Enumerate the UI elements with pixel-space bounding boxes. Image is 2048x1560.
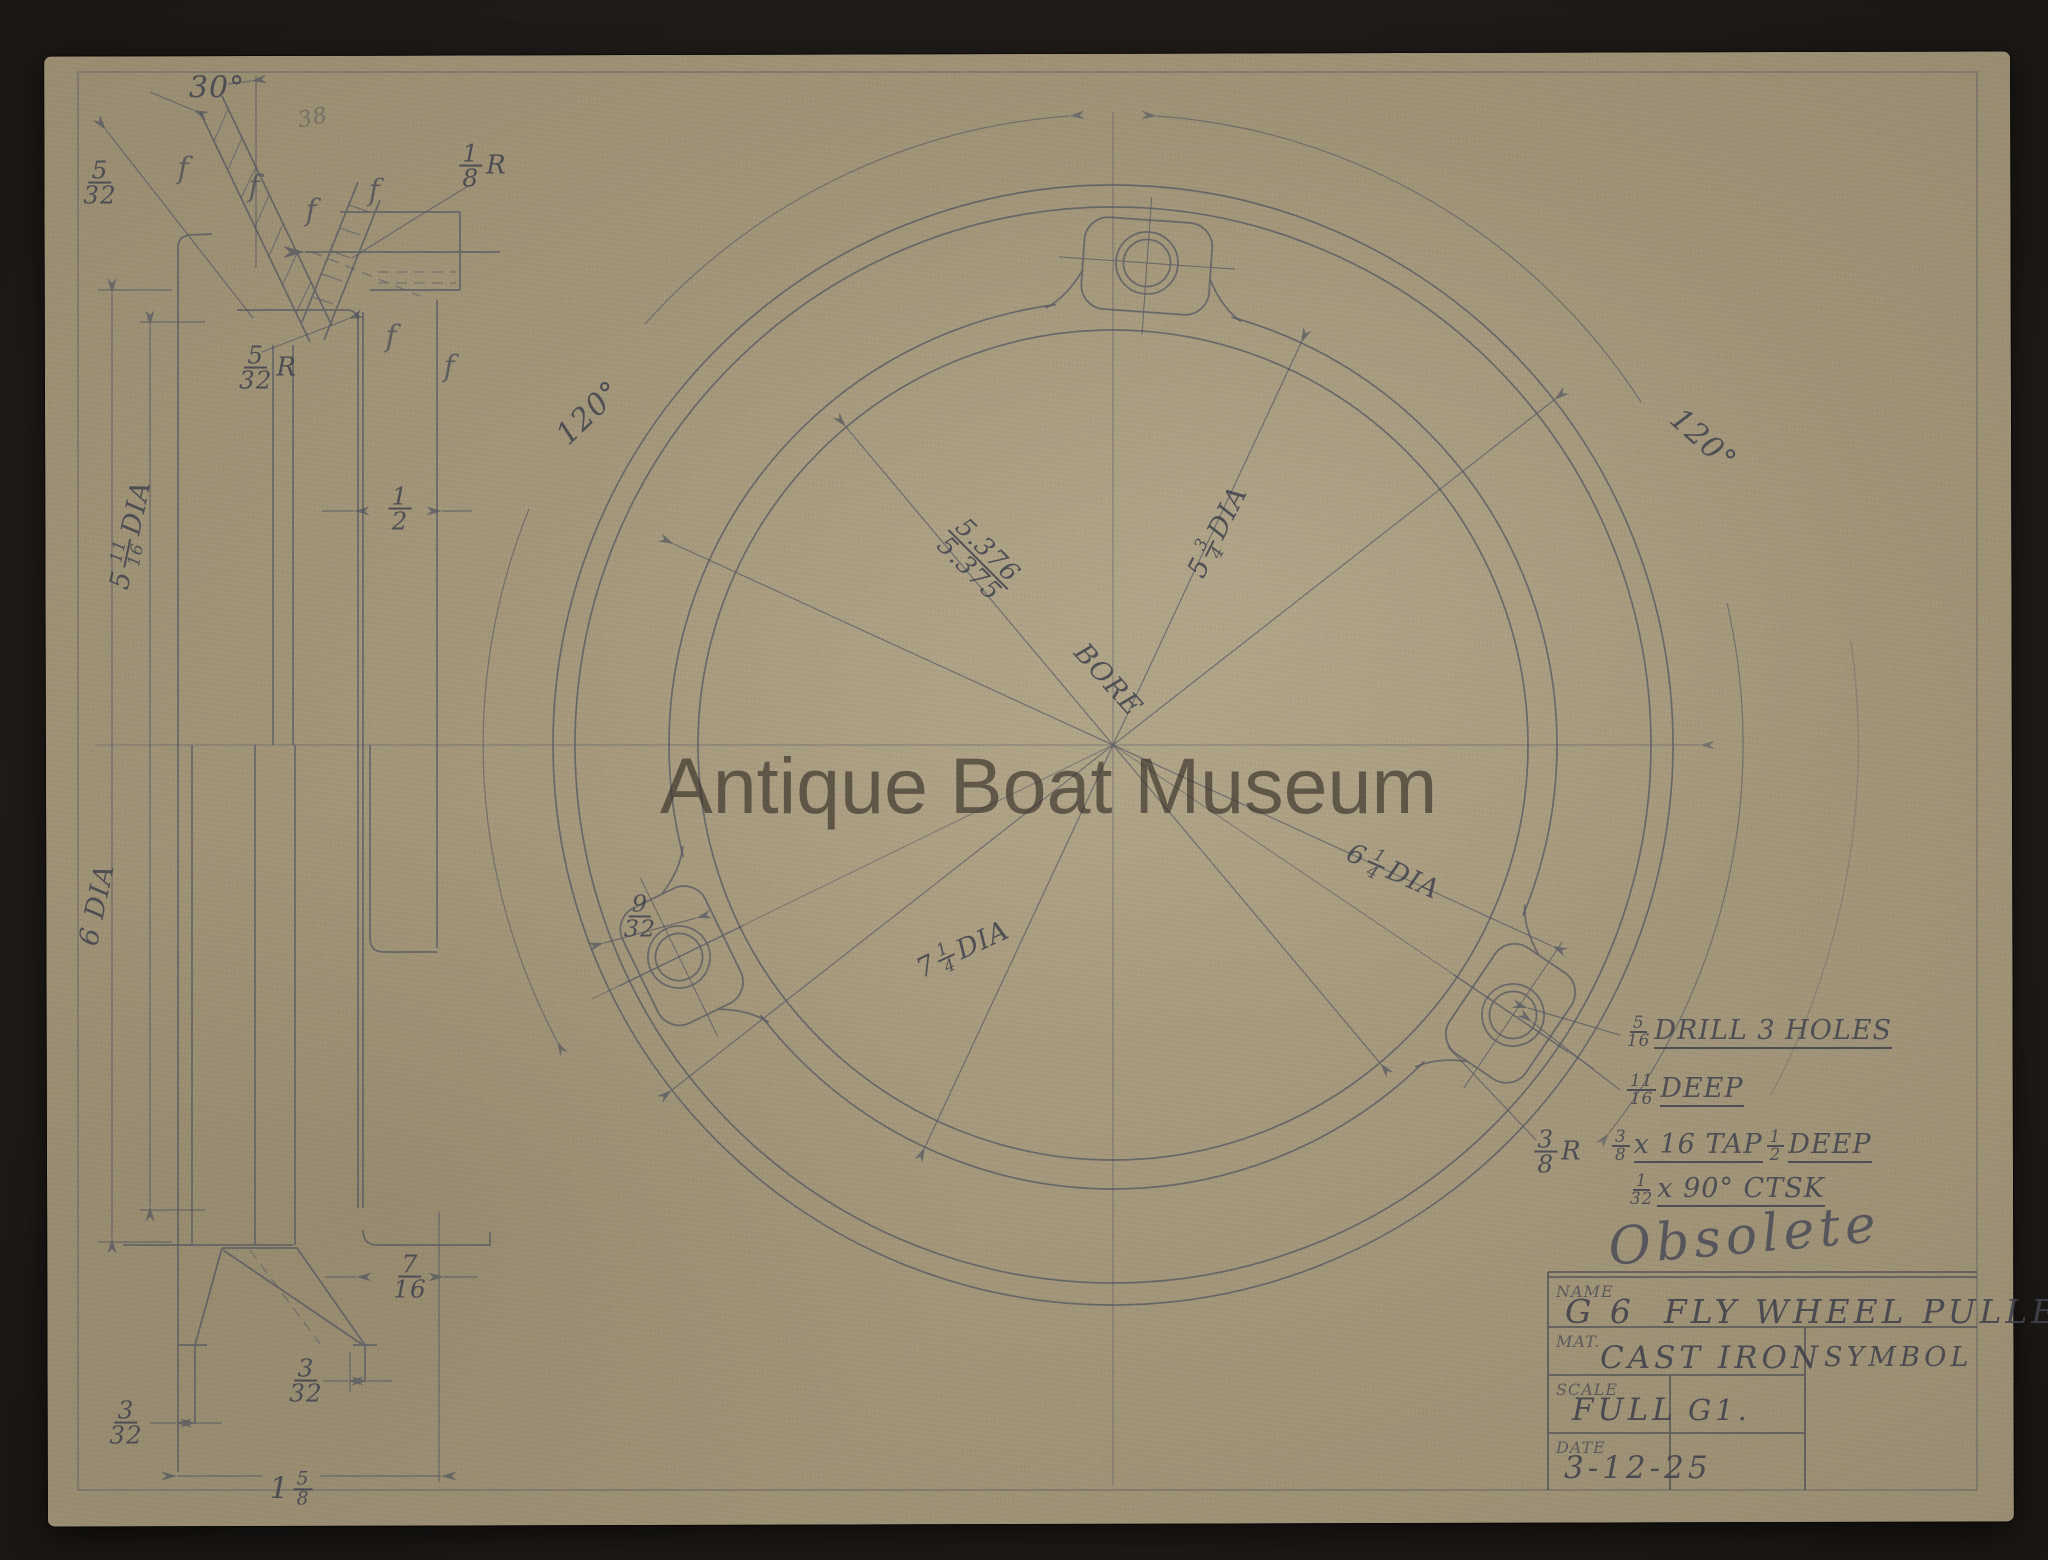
angle-dimension-arcs — [483, 116, 1858, 1133]
drawing-code: G1. — [1688, 1393, 1751, 1427]
bolt-ears — [577, 190, 1623, 1133]
hidden-lines — [250, 252, 456, 1344]
date-value: 3-12-25 — [1564, 1450, 1712, 1486]
section-dimension-lines — [98, 76, 478, 1482]
photo-stage: 30°3853218R532R1251116 DIA6 DIA716332332… — [0, 0, 2048, 1560]
material-value: CAST IRON — [1600, 1340, 1822, 1376]
title-block-mat-label: MAT. — [1556, 1332, 1600, 1351]
drawing-title: G 6 FLY WHEEL PULLEY — [1565, 1292, 2048, 1331]
section-view-linework — [123, 96, 500, 1472]
symbol-label: SYMBOL — [1824, 1342, 1972, 1373]
leader-lines — [604, 918, 1620, 1140]
scale-value: FULL — [1572, 1392, 1677, 1428]
museum-watermark: Antique Boat Museum — [660, 740, 1437, 832]
